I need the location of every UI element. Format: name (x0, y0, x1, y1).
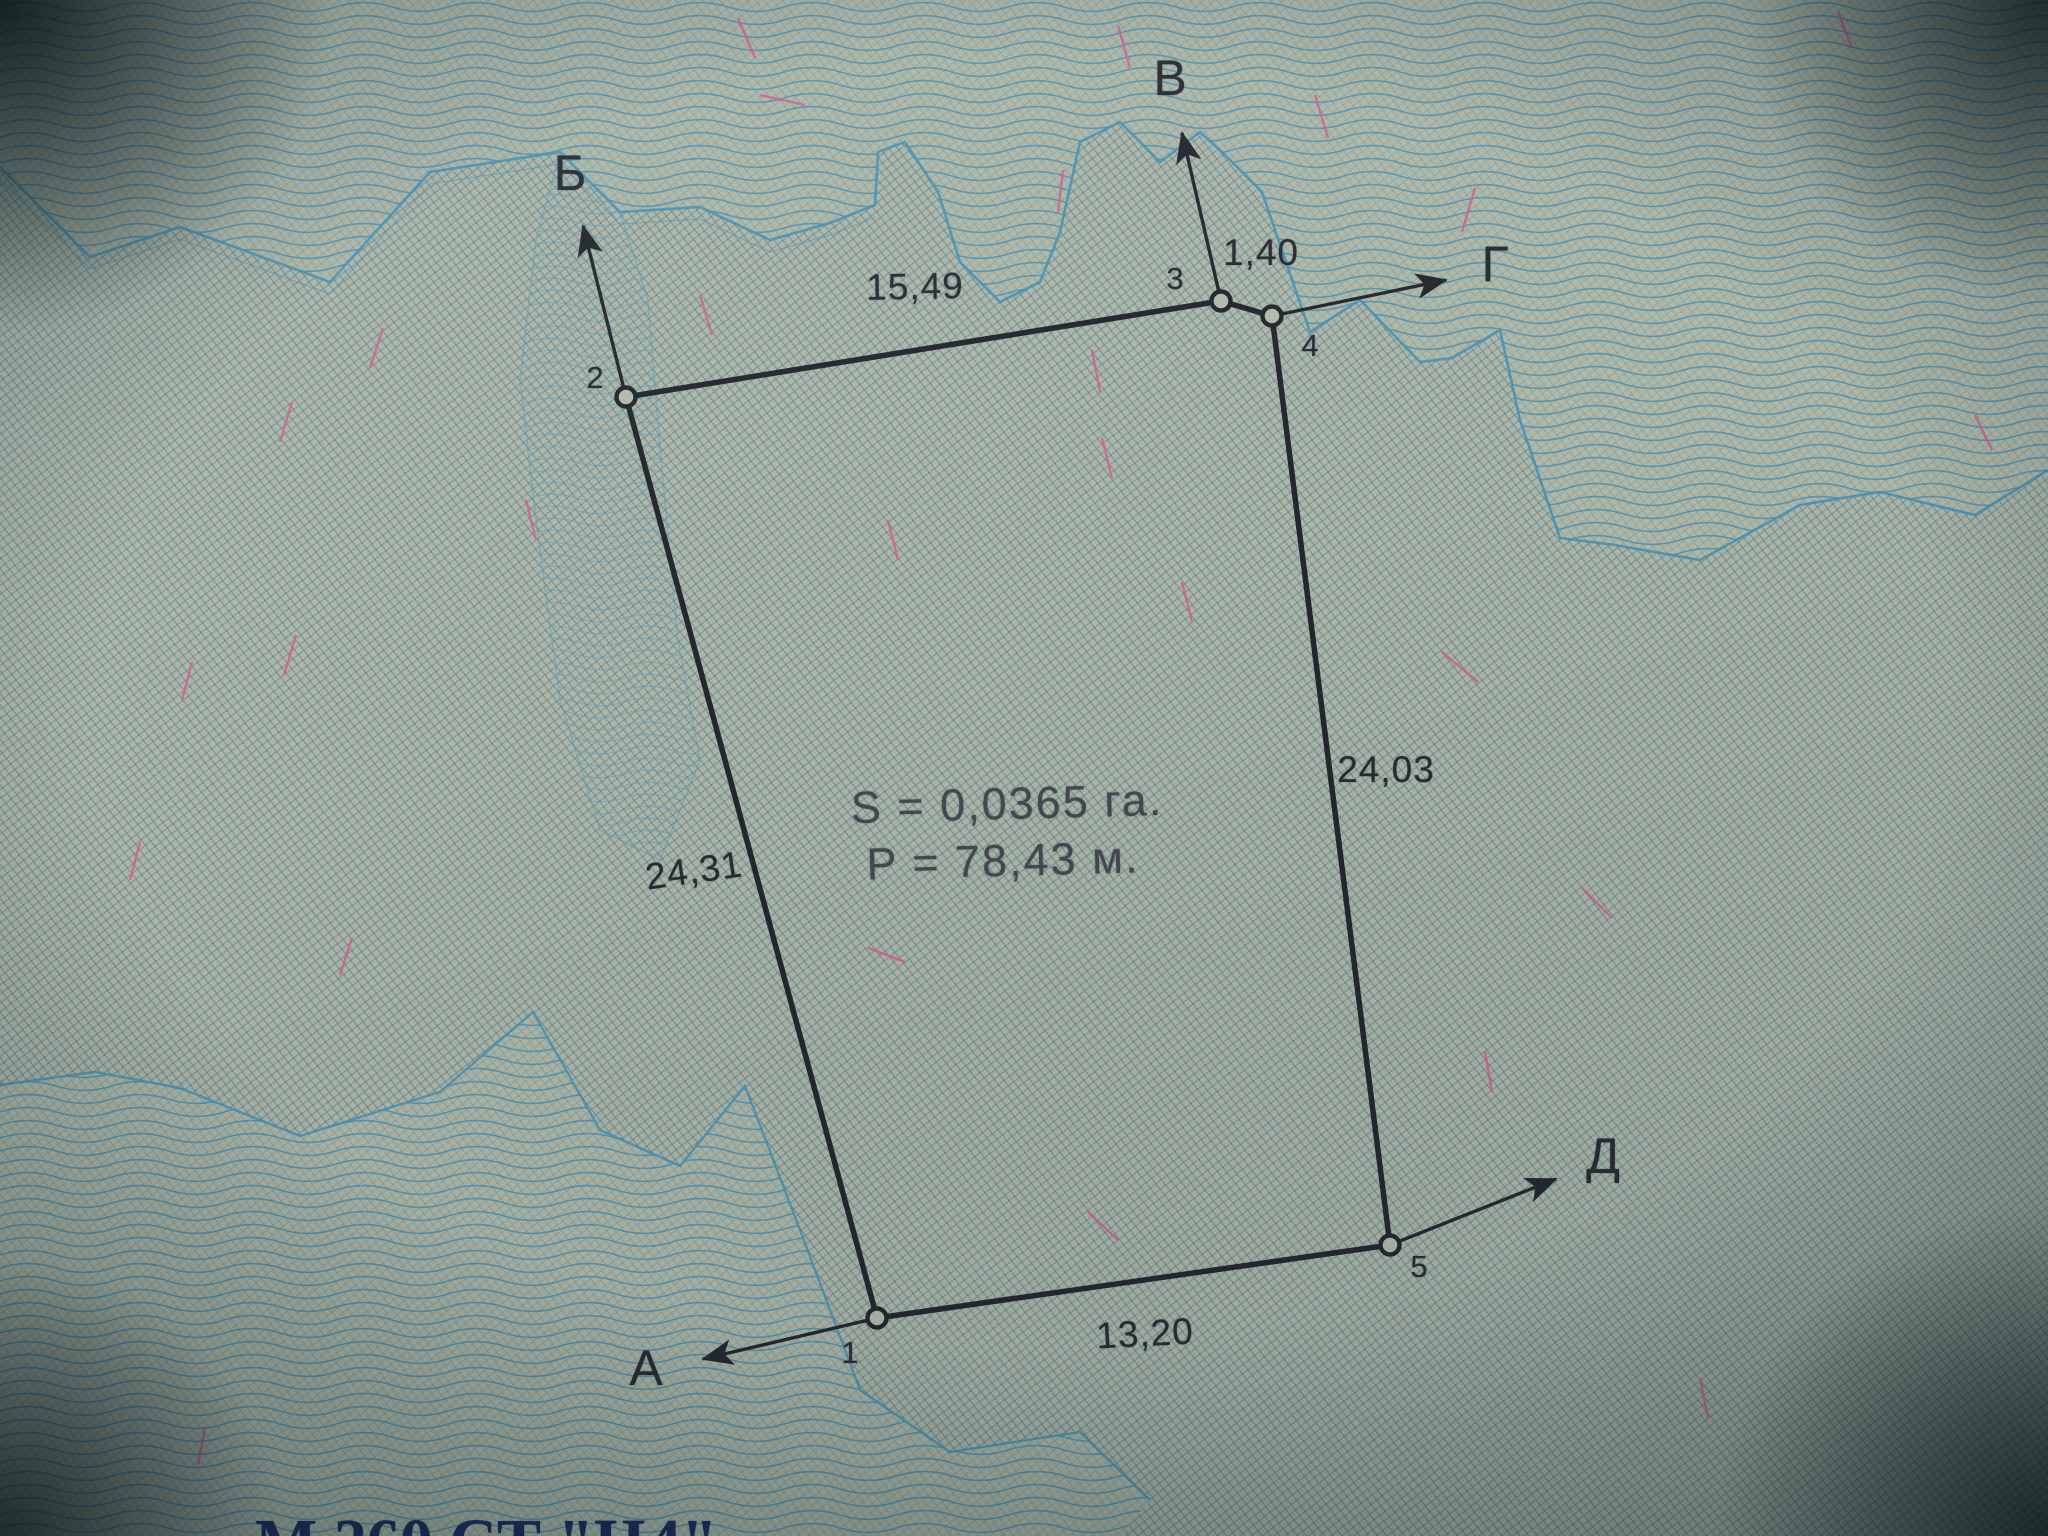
direction-label-d: Д (1586, 1127, 1620, 1185)
cadastral-plan-photo: А Б В Г Д 1 2 3 4 5 24,31 15,49 1,40 24,… (0, 0, 2048, 1536)
direction-label-b: Б (554, 144, 587, 202)
vertex-label-2: 2 (586, 360, 603, 396)
footer-caption-fragment-left: М 260 СТ "Н (255, 1505, 645, 1536)
vertex-label-4: 4 (1301, 328, 1318, 364)
area-label: S = 0,0365 га. (850, 774, 1164, 834)
side-length-label-5-1: 13,20 (1095, 1310, 1195, 1357)
boundary-arrow-d (1390, 1179, 1556, 1245)
vertex-point-3 (1212, 292, 1231, 311)
boundary-arrow-v (1182, 133, 1221, 301)
direction-arrows (583, 133, 1556, 1359)
vertex-label-5: 5 (1410, 1249, 1427, 1285)
perimeter-label: P = 78,43 м. (866, 831, 1140, 890)
vertex-label-1: 1 (841, 1335, 858, 1371)
vertex-point-2 (617, 388, 636, 407)
side-length-label-3-4: 1,40 (1223, 232, 1299, 274)
vertex-point-5 (1381, 1236, 1400, 1255)
vertex-label-3: 3 (1166, 261, 1183, 297)
footer-caption-fragment-right: 4" (648, 1505, 718, 1536)
boundary-arrow-g (1272, 280, 1446, 316)
land-plot-diagram (0, 0, 2048, 1536)
vertex-point-1 (868, 1309, 887, 1328)
side-length-label-2-3: 15,49 (866, 265, 964, 309)
direction-label-g: Г (1481, 235, 1508, 293)
direction-label-v: В (1153, 49, 1186, 107)
side-length-label-4-5: 24,03 (1337, 749, 1435, 791)
direction-label-a: А (629, 1339, 662, 1397)
vertex-point-4 (1263, 307, 1282, 326)
